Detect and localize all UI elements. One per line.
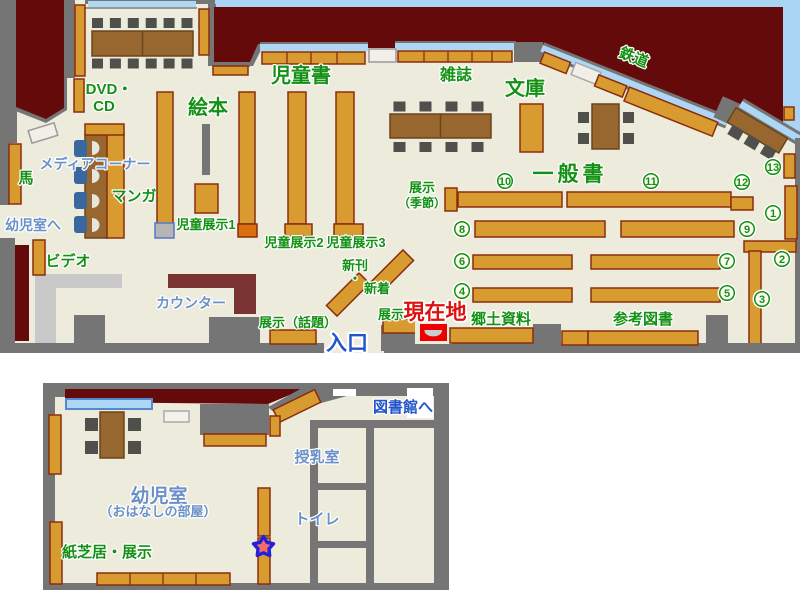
- svg-text:新着: 新着: [364, 281, 390, 296]
- svg-text:1: 1: [770, 208, 776, 220]
- svg-text:10: 10: [499, 176, 511, 188]
- svg-text:DVD・: DVD・: [86, 81, 133, 98]
- svg-text:郷土資料: 郷土資料: [471, 310, 531, 328]
- svg-text:雑誌: 雑誌: [439, 65, 472, 84]
- svg-text:一般書: 一般書: [533, 162, 608, 186]
- svg-text:紙芝居・展示: 紙芝居・展示: [62, 543, 152, 561]
- svg-text:6: 6: [459, 256, 465, 268]
- svg-text:児童展示2: 児童展示2: [263, 235, 323, 250]
- svg-text:13: 13: [767, 162, 779, 174]
- svg-text:2: 2: [779, 254, 785, 266]
- svg-text:参考図書: 参考図書: [613, 310, 673, 328]
- svg-text:ビデオ: ビデオ: [45, 252, 90, 270]
- svg-text:図書館へ: 図書館へ: [373, 398, 433, 416]
- svg-text:5: 5: [724, 288, 730, 300]
- svg-text:授乳室: 授乳室: [294, 448, 339, 466]
- svg-text:3: 3: [759, 294, 765, 306]
- svg-text:カウンター: カウンター: [156, 295, 226, 311]
- svg-text:9: 9: [744, 224, 750, 236]
- svg-text:メディアコーナー: メディアコーナー: [39, 156, 150, 172]
- svg-text:CD: CD: [93, 98, 115, 115]
- svg-text:絵本: 絵本: [188, 95, 228, 119]
- svg-text:現在地: 現在地: [404, 300, 467, 324]
- svg-text:馬: 馬: [18, 170, 33, 187]
- svg-text:展示: 展示: [409, 180, 435, 195]
- svg-text:展示: 展示: [378, 307, 404, 322]
- svg-text:マンガ: マンガ: [111, 188, 156, 205]
- svg-text:4: 4: [459, 286, 466, 298]
- svg-text:8: 8: [459, 224, 465, 236]
- svg-text:幼児室へ: 幼児室へ: [5, 217, 61, 233]
- svg-text:7: 7: [724, 256, 730, 268]
- svg-text:トイレ: トイレ: [294, 511, 339, 528]
- svg-text:・: ・: [348, 271, 361, 286]
- svg-text:（季節）: （季節）: [398, 195, 446, 210]
- svg-text:展示（話題）: 展示（話題）: [259, 315, 337, 330]
- svg-text:児童展示1: 児童展示1: [175, 217, 235, 232]
- svg-text:12: 12: [736, 177, 748, 189]
- svg-text:（おはなしの部屋）: （おはなしの部屋）: [99, 504, 216, 519]
- svg-text:11: 11: [645, 176, 657, 188]
- svg-text:入口: 入口: [326, 332, 368, 355]
- svg-text:文庫: 文庫: [505, 76, 545, 100]
- svg-text:児童展示3: 児童展示3: [325, 235, 385, 250]
- svg-text:児童書: 児童書: [270, 63, 331, 87]
